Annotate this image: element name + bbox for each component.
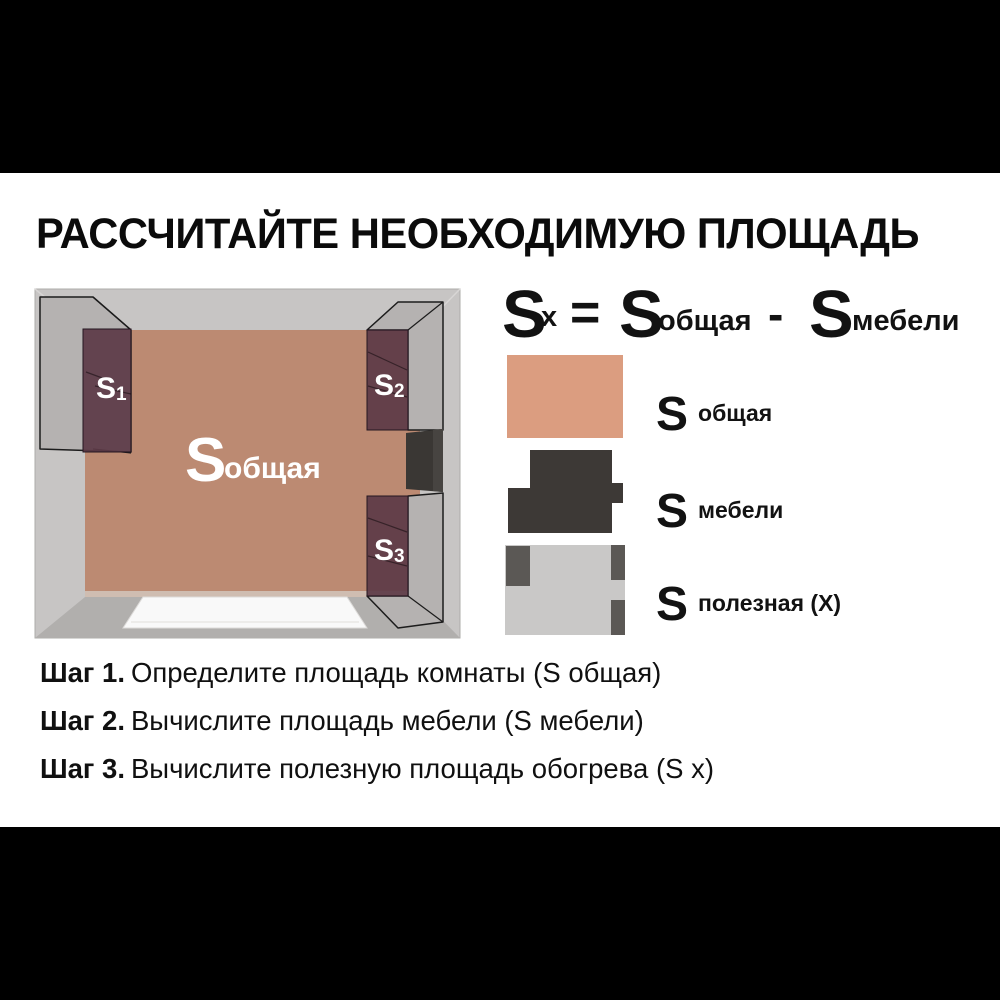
formula-s-furniture: S	[809, 281, 854, 348]
top-black-bar	[0, 0, 1000, 173]
legend-swatch-useful-area	[505, 545, 625, 635]
furniture-s3: S3	[367, 493, 443, 628]
step-3: Шаг 3.Вычислите полезную площадь обогрев…	[40, 753, 714, 785]
legend-s-useful: S	[656, 585, 688, 624]
formula-sub-total: общая	[658, 307, 752, 336]
legend-s-total: S	[656, 395, 688, 434]
legend-label-total: общая	[698, 400, 772, 427]
formula-equals: =	[570, 287, 600, 339]
furniture-s2: S2	[367, 302, 443, 430]
step-1-prefix: Шаг 1.	[40, 657, 125, 688]
legend-swatch-total-area	[507, 355, 623, 438]
formula-sub-x: x	[541, 303, 557, 332]
infographic-canvas: РАССЧИТАЙТЕ НЕОБХОДИМУЮ ПЛОЩАДЬ S1	[0, 0, 1000, 1000]
bottom-black-bar	[0, 827, 1000, 1000]
formula-s-x: S	[502, 281, 547, 348]
window	[123, 597, 367, 628]
door	[406, 429, 443, 492]
legend-item-total: S общая	[656, 395, 772, 434]
step-2-text: Вычислите площадь мебели (S мебели)	[131, 705, 644, 736]
formula-minus: -	[768, 291, 783, 337]
step-2-prefix: Шаг 2.	[40, 705, 125, 736]
formula-s-total: S	[619, 281, 664, 348]
step-1: Шаг 1.Определите площадь комнаты (S обща…	[40, 657, 661, 689]
svg-text:общая: общая	[224, 452, 321, 485]
legend-label-useful: полезная (X)	[698, 590, 841, 617]
formula: S x = S общая - S мебели	[502, 288, 982, 352]
legend-item-furniture: S мебели	[656, 492, 783, 531]
step-3-prefix: Шаг 3.	[40, 753, 125, 784]
legend-swatches	[500, 350, 630, 640]
legend-s-furniture: S	[656, 492, 688, 531]
legend-swatch-furniture-area	[508, 450, 623, 533]
legend-item-useful: S полезная (X)	[656, 585, 841, 624]
formula-sub-furniture: мебели	[852, 307, 960, 336]
step-1-text: Определите площадь комнаты (S общая)	[131, 657, 661, 688]
step-2: Шаг 2.Вычислите площадь мебели (S мебели…	[40, 705, 644, 737]
page-title: РАССЧИТАЙТЕ НЕОБХОДИМУЮ ПЛОЩАДЬ	[36, 210, 919, 259]
legend-label-furniture: мебели	[698, 497, 783, 524]
furniture-s1: S1	[40, 297, 131, 453]
step-3-text: Вычислите полезную площадь обогрева (S x…	[131, 753, 714, 784]
svg-text:S: S	[185, 426, 226, 495]
room-plan-diagram: S1 S2 S3 S общая	[30, 285, 465, 643]
